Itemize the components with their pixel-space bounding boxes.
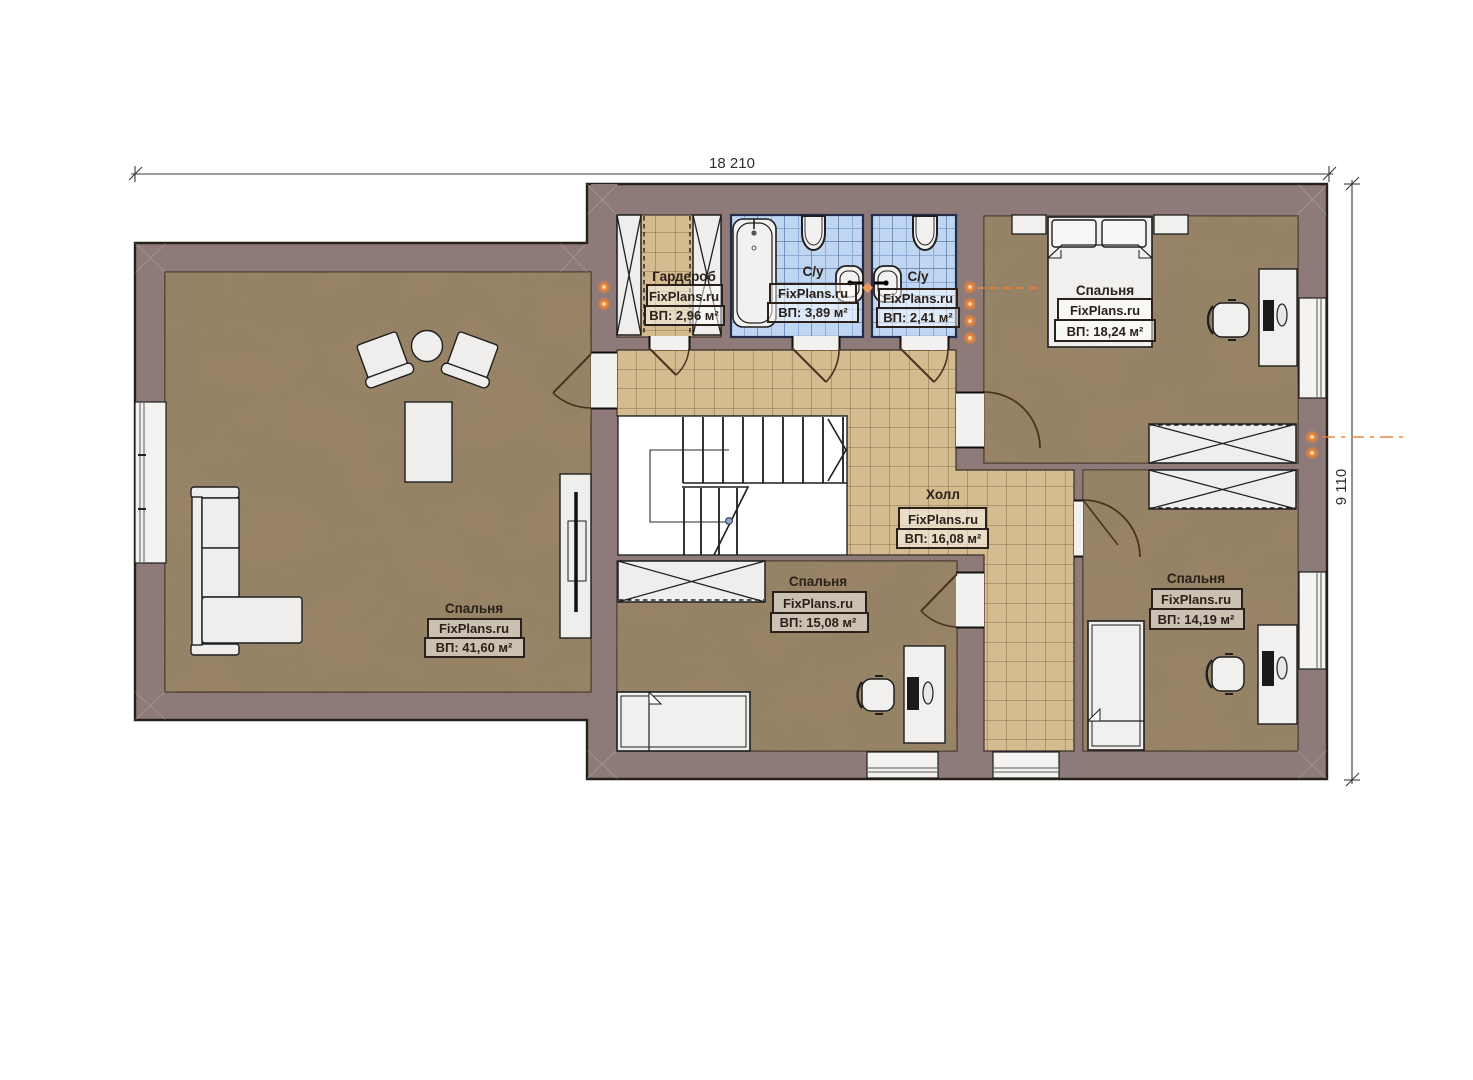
svg-text:Спальня: Спальня: [1076, 283, 1134, 298]
svg-text:FixPlans.ru: FixPlans.ru: [1070, 303, 1140, 318]
svg-text:FixPlans.ru: FixPlans.ru: [439, 621, 509, 636]
svg-text:FixPlans.ru: FixPlans.ru: [783, 596, 853, 611]
svg-text:FixPlans.ru: FixPlans.ru: [649, 289, 719, 304]
svg-text:С/у: С/у: [907, 269, 929, 284]
svg-text:ВП: 41,60 м²: ВП: 41,60 м²: [436, 640, 513, 655]
svg-text:Спальня: Спальня: [789, 574, 847, 589]
svg-text:ВП: 18,24 м²: ВП: 18,24 м²: [1067, 324, 1144, 339]
svg-text:18 210: 18 210: [709, 155, 755, 172]
svg-text:ВП: 16,08 м²: ВП: 16,08 м²: [905, 531, 982, 546]
svg-text:ВП: 15,08 м²: ВП: 15,08 м²: [780, 615, 857, 630]
svg-text:FixPlans.ru: FixPlans.ru: [883, 291, 953, 306]
svg-text:ВП: 2,96 м²: ВП: 2,96 м²: [649, 308, 719, 323]
svg-text:FixPlans.ru: FixPlans.ru: [778, 286, 848, 301]
svg-text:Спальня: Спальня: [445, 601, 503, 616]
svg-text:Холл: Холл: [926, 487, 960, 502]
svg-text:FixPlans.ru: FixPlans.ru: [908, 512, 978, 527]
svg-text:ВП: 3,89 м²: ВП: 3,89 м²: [778, 305, 848, 320]
svg-text:ВП: 2,41 м²: ВП: 2,41 м²: [883, 310, 953, 325]
svg-text:Спальня: Спальня: [1167, 571, 1225, 586]
svg-text:ВП: 14,19 м²: ВП: 14,19 м²: [1158, 612, 1235, 627]
svg-text:FixPlans.ru: FixPlans.ru: [1161, 592, 1231, 607]
svg-text:9 110: 9 110: [1333, 469, 1350, 505]
svg-text:Гардероб: Гардероб: [652, 269, 716, 284]
svg-text:С/у: С/у: [802, 264, 824, 279]
